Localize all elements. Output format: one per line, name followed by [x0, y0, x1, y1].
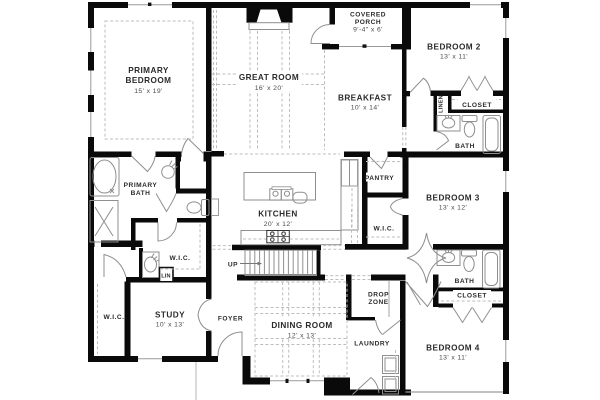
svg-text:BEDROOM: BEDROOM — [126, 76, 172, 85]
svg-text:13' x 11': 13' x 11' — [439, 355, 467, 362]
svg-text:15' x 19': 15' x 19' — [134, 88, 163, 95]
svg-text:BEDROOM 4: BEDROOM 4 — [426, 344, 480, 353]
svg-text:LINEN: LINEN — [439, 95, 445, 113]
svg-text:BATH: BATH — [455, 278, 475, 285]
svg-text:W.I.C.: W.I.C. — [104, 314, 125, 321]
svg-text:LIN: LIN — [161, 274, 171, 280]
svg-text:CLOSET: CLOSET — [457, 293, 487, 300]
svg-text:13' x 12': 13' x 12' — [439, 205, 468, 212]
svg-text:CLOSET: CLOSET — [462, 102, 492, 109]
svg-text:W.I.C.: W.I.C. — [170, 255, 191, 262]
svg-text:PRIMARY: PRIMARY — [124, 182, 158, 189]
svg-text:BREAKFAST: BREAKFAST — [338, 94, 392, 103]
svg-text:20' x 12': 20' x 12' — [264, 221, 293, 228]
svg-text:KITCHEN: KITCHEN — [258, 210, 298, 219]
svg-text:BATH: BATH — [455, 143, 475, 150]
svg-text:COVERED: COVERED — [350, 12, 386, 19]
svg-text:FOYER: FOYER — [218, 316, 243, 323]
svg-text:PRIMARY: PRIMARY — [128, 66, 169, 75]
svg-text:DROP: DROP — [368, 292, 389, 299]
svg-text:12' x 13': 12' x 13' — [288, 333, 317, 340]
svg-text:10' x 14': 10' x 14' — [351, 105, 380, 112]
svg-text:10' x 13': 10' x 13' — [156, 322, 185, 329]
svg-text:9'-4" x 6': 9'-4" x 6' — [353, 27, 383, 34]
svg-text:GREAT ROOM: GREAT ROOM — [239, 73, 299, 82]
svg-text:16' x 20': 16' x 20' — [255, 85, 284, 92]
svg-text:BATH: BATH — [131, 190, 151, 197]
svg-text:UP: UP — [228, 262, 238, 269]
svg-text:BEDROOM 2: BEDROOM 2 — [427, 43, 481, 52]
svg-text:ZONE: ZONE — [368, 299, 388, 306]
svg-text:LAUNDRY: LAUNDRY — [354, 341, 390, 348]
svg-text:STUDY: STUDY — [155, 311, 185, 320]
svg-text:PORCH: PORCH — [355, 19, 381, 26]
svg-text:BEDROOM 3: BEDROOM 3 — [426, 194, 480, 203]
svg-text:DINING ROOM: DINING ROOM — [271, 321, 332, 330]
svg-text:PANTRY: PANTRY — [365, 175, 394, 182]
svg-text:W.I.C.: W.I.C. — [374, 226, 395, 233]
svg-text:13' x 11': 13' x 11' — [440, 54, 468, 61]
